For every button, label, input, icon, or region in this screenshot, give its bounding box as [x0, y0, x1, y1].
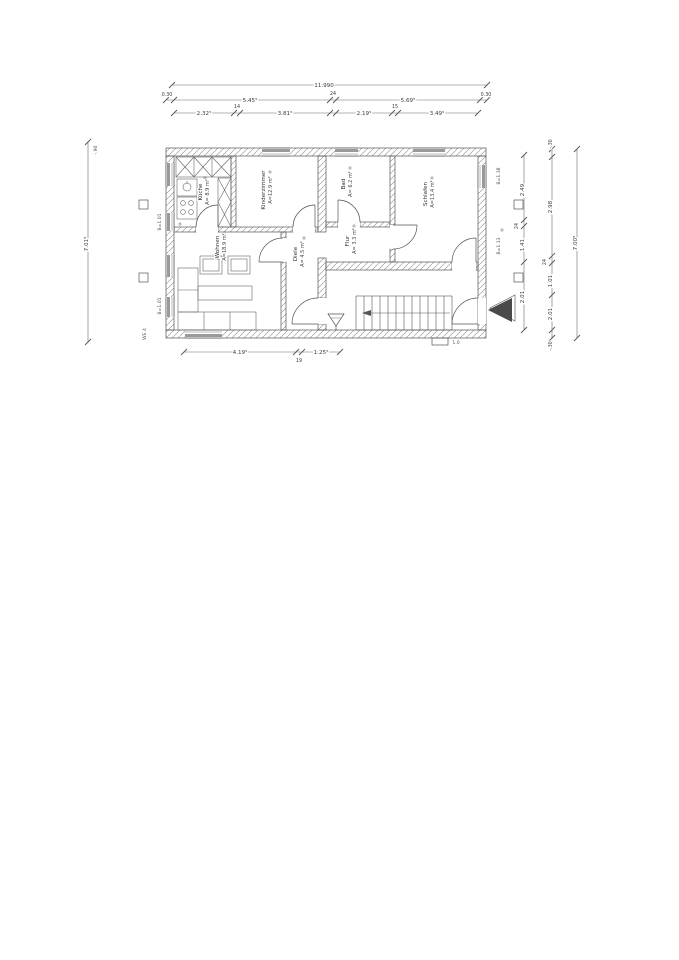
- window-wohnen-2: [166, 255, 174, 277]
- window-note: B=1.01: [157, 297, 163, 314]
- livingroom-furniture: [178, 256, 256, 330]
- coffee-table: [198, 286, 252, 300]
- dim-rinner-2: 1.41: [520, 238, 526, 251]
- door-kueche: [196, 205, 218, 232]
- dim-row2-1: 5.45⁵: [243, 97, 258, 104]
- room-area-kueche: A= 8.9 m²: [205, 179, 211, 205]
- dim-row2-2: 24: [330, 91, 336, 97]
- dim-router-0: -.30: [548, 139, 554, 148]
- window-wohnen-1: [166, 213, 174, 231]
- dim-rinner-3: 2.01: [520, 290, 526, 303]
- dim-row3-0: 2.32⁵: [197, 110, 212, 117]
- entry-step: 1.0: [432, 338, 460, 346]
- dim-bottom-1: 19: [296, 358, 302, 364]
- corner-label: WE 4: [142, 328, 148, 340]
- dim-left-total: 7.01⁵: [83, 237, 90, 252]
- window-bad: [335, 148, 358, 156]
- floor-plan-drawing: 1.0 Küche A= 8.9 m² Kinderzimmer A=12.9 …: [0, 0, 679, 960]
- window-kueche: [166, 163, 174, 186]
- armchair: [228, 256, 250, 274]
- dim-row2-0: 0.30: [162, 92, 173, 98]
- dim-router-4: 2.01: [548, 307, 554, 320]
- scanned-floor-plan-page: 1.0 Küche A= 8.9 m² Kinderzimmer A=12.9 …: [0, 0, 679, 960]
- dimension-chain-bottom: 4.19⁵ 19 1.25⁵: [181, 349, 343, 364]
- door-schlafen-treppe: [452, 238, 476, 270]
- dim-right-total: 7.00⁵: [572, 236, 579, 251]
- dimension-chain-left: 7.01⁵ -.90 WE 4: [83, 139, 148, 345]
- door-schlafen-flur: [390, 225, 417, 249]
- dimension-chain-right: 2.49 24 1.41 2.01 -.30 2.98 24 1.01 2.01…: [514, 139, 580, 350]
- door-kinderzimmer: [293, 205, 315, 232]
- dim-top-total: 11.990: [314, 83, 334, 89]
- room-label-bad: Bad: [341, 178, 347, 189]
- door-entrance: [452, 298, 486, 324]
- dim-row3-1: 14: [234, 104, 240, 110]
- room-area-wohnen: A=18.9 m²: [222, 233, 228, 260]
- room-area-schlafen: A=13.4 m²: [430, 180, 436, 207]
- room-area-flur: A= 3.3 m²: [352, 228, 358, 254]
- room-label-flur: Flur: [345, 235, 351, 246]
- window-note: B=1.13: [496, 237, 502, 254]
- dim-row3-3: 2.19⁵: [357, 110, 372, 117]
- dim-row3-2: 3.81⁵: [278, 110, 293, 117]
- window-kinderzimmer: [262, 148, 290, 156]
- entrance-arrow: [488, 295, 515, 322]
- window-schlafen-top: [413, 148, 445, 156]
- room-label-kueche: Küche: [198, 183, 204, 201]
- step-label: 1.0: [452, 340, 459, 346]
- dim-router-3: 1.01: [548, 274, 554, 287]
- room-label-kinderzimmer: Kinderzimmer: [261, 170, 267, 210]
- window-wohnen-bottom: [185, 330, 222, 338]
- dim-router-2: 24: [542, 259, 548, 265]
- dim-router-1: 2.98: [548, 200, 554, 213]
- stove-unit: [177, 197, 197, 219]
- dimension-chain-top: 11.990 0.30 5.45⁵ 24 5.69⁵ 0.30 2.32⁵ 14…: [162, 82, 492, 117]
- dim-rinner-1: 24: [514, 223, 520, 229]
- dim-bottom-0: 4.19⁵: [233, 349, 248, 356]
- room-area-bad: A= 6.2 m²: [348, 171, 354, 197]
- dim-row3-4: 15: [392, 104, 398, 110]
- room-area-kinderzimmer: A=12.9 m²: [268, 176, 274, 203]
- door-diele-treppe: [292, 298, 326, 324]
- dim-row3-5: 3.49⁵: [430, 110, 445, 117]
- staircase: [356, 296, 452, 330]
- stair-direction-arrow: [362, 310, 371, 316]
- dim-router-5: -.30: [548, 341, 554, 350]
- tall-cabinet: [218, 178, 231, 227]
- dim-rinner-0: 2.49: [520, 183, 526, 196]
- drain-symbol: [328, 314, 344, 331]
- room-label-diele: Diele: [293, 246, 299, 261]
- corner-sofa: [178, 268, 256, 330]
- room-area-diele: A= 4.5 m²: [300, 241, 306, 267]
- sink-unit: [177, 179, 197, 196]
- dim-left-top-note: -.90: [93, 145, 99, 154]
- window-wohnen-3: [166, 297, 174, 317]
- dim-bottom-2: 1.25⁵: [314, 349, 329, 356]
- room-label-schlafen: Schlafen: [423, 181, 429, 206]
- dim-row2-4: 0.30: [481, 92, 492, 98]
- room-label-wohnen: Wohnen: [215, 235, 221, 258]
- window-schlafen-right: [478, 165, 486, 188]
- door-bad: [338, 200, 360, 227]
- window-note: B=1.38: [496, 167, 502, 184]
- dim-row2-3: 5.69⁵: [401, 97, 416, 104]
- window-note: B=1.01: [157, 213, 163, 230]
- door-wohnen: [259, 238, 286, 262]
